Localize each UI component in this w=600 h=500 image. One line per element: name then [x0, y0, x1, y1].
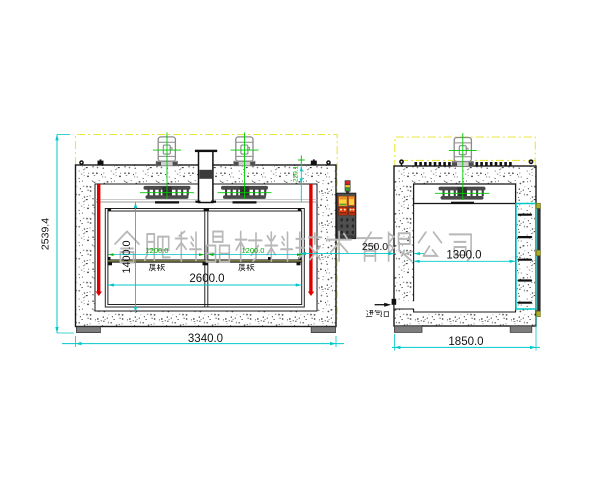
svg-text:1200.0: 1200.0	[242, 246, 265, 255]
svg-text:1200.0: 1200.0	[146, 246, 169, 255]
svg-text:1300.0: 1300.0	[446, 249, 481, 261]
svg-text:250.0: 250.0	[362, 241, 388, 253]
svg-text:1850.0: 1850.0	[448, 336, 483, 348]
svg-text:3340.0: 3340.0	[188, 333, 223, 345]
svg-text:1400.0: 1400.0	[121, 240, 133, 273]
svg-text:2539.4: 2539.4	[40, 218, 52, 250]
svg-text:2600.0: 2600.0	[189, 273, 224, 285]
svg-text:220.1: 220.1	[293, 165, 300, 182]
